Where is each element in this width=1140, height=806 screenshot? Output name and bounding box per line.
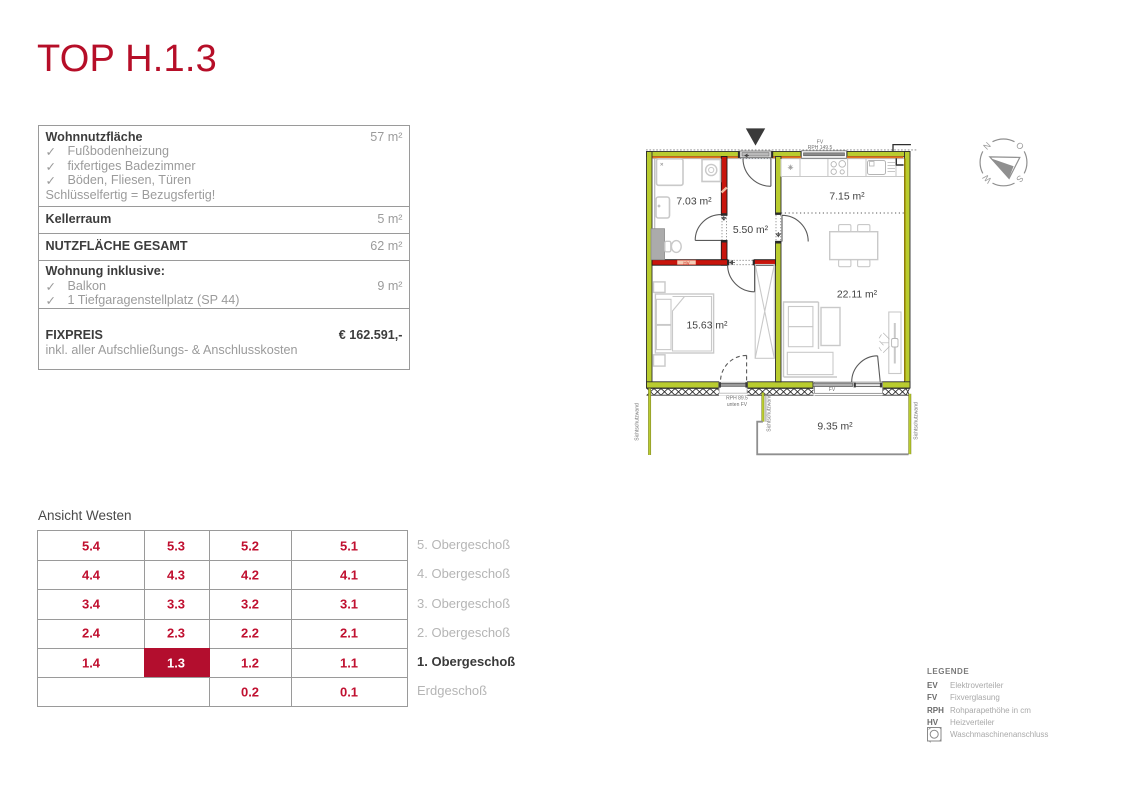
svg-text:22.11 m²: 22.11 m²: [837, 290, 878, 301]
svg-text:15.63 m²: 15.63 m²: [686, 321, 728, 332]
svg-text:HV: HV: [683, 260, 689, 265]
svg-text:7.03 m²: 7.03 m²: [676, 197, 712, 208]
svg-text:5.50 m²: 5.50 m²: [733, 225, 769, 236]
svg-text:FV: FV: [829, 387, 836, 393]
svg-text:Sichtschutzwand: Sichtschutzwand: [635, 403, 641, 441]
svg-text:unten FV: unten FV: [727, 402, 748, 408]
svg-text:RPH 89.5: RPH 89.5: [726, 396, 748, 402]
svg-text:9.35 m²: 9.35 m²: [817, 422, 853, 433]
svg-text:Sichtschutzwand: Sichtschutzwand: [766, 394, 772, 432]
svg-text:O: O: [1014, 140, 1026, 152]
svg-text:Sichtschutzwand: Sichtschutzwand: [914, 402, 920, 440]
svg-text:N: N: [981, 140, 993, 152]
svg-text:7.15 m²: 7.15 m²: [829, 192, 865, 203]
svg-text:RPH 149.5: RPH 149.5: [808, 145, 833, 151]
svg-text:S: S: [1014, 173, 1025, 184]
svg-text:W: W: [980, 172, 993, 185]
